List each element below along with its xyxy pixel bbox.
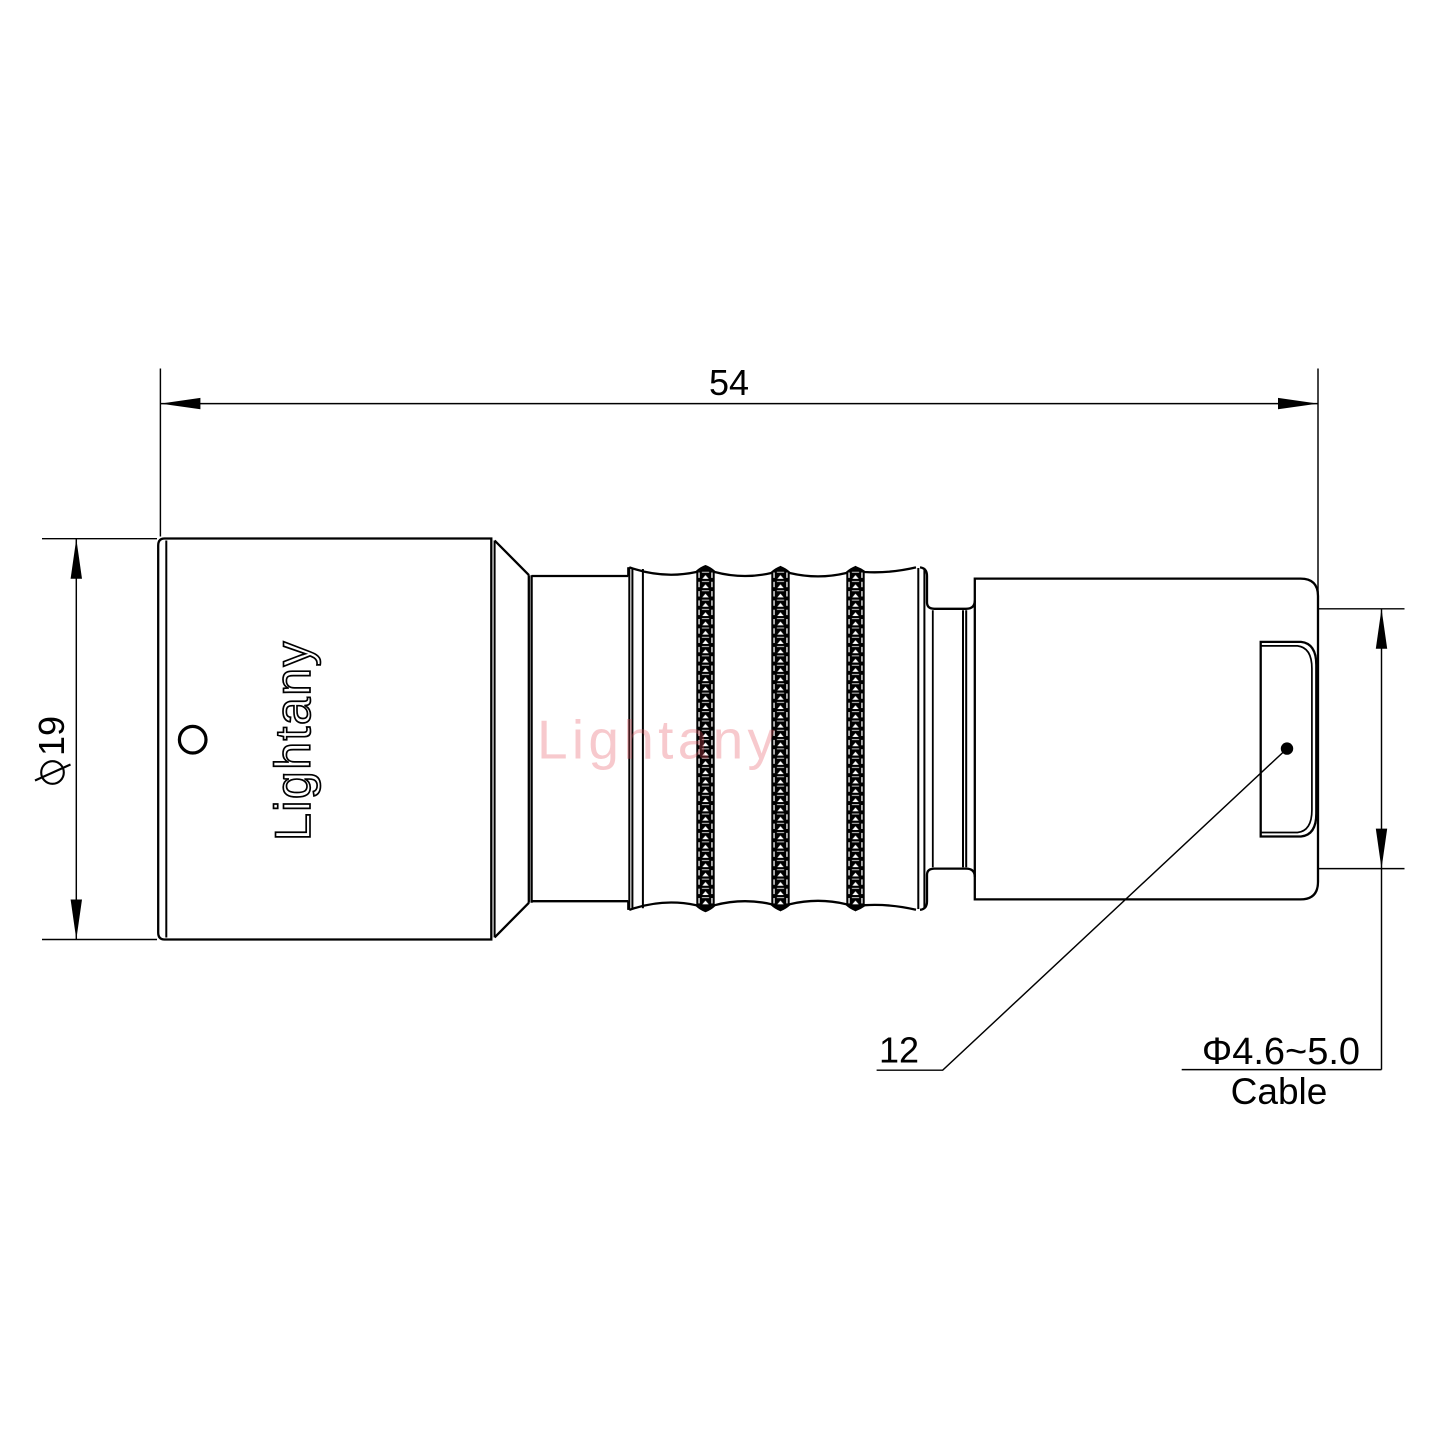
svg-text:12: 12 [879, 1029, 919, 1070]
svg-text:Lightany: Lightany [537, 708, 779, 770]
svg-text:Lightany: Lightany [265, 640, 321, 841]
svg-text:19: 19 [31, 716, 72, 756]
svg-text:Φ4.6~5.0: Φ4.6~5.0 [1202, 1031, 1360, 1073]
svg-text:Cable: Cable [1231, 1071, 1328, 1112]
svg-text:54: 54 [709, 362, 749, 403]
